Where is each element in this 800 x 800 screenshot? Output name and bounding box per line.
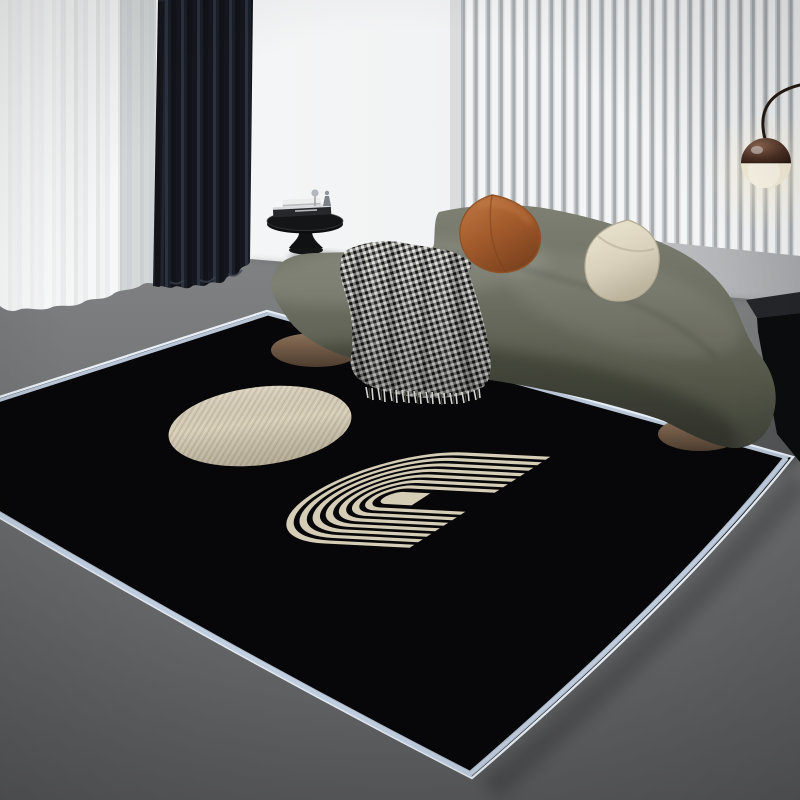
vignette bbox=[0, 0, 800, 800]
living-room-scene bbox=[0, 0, 800, 800]
scene-root bbox=[0, 0, 800, 800]
